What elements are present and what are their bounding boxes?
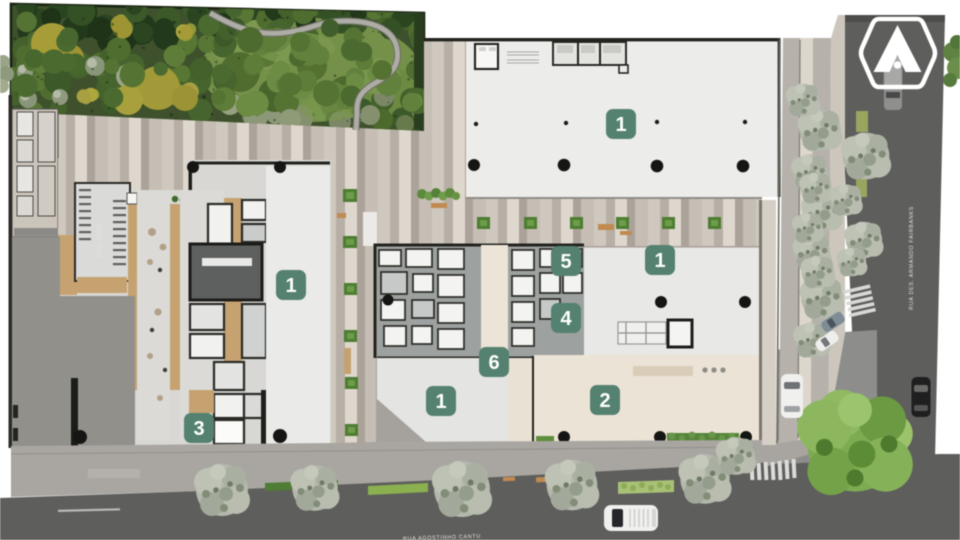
svg-text:1: 1	[654, 250, 665, 272]
svg-text:2: 2	[599, 390, 610, 412]
svg-text:1: 1	[435, 391, 446, 413]
svg-text:6: 6	[488, 352, 499, 374]
svg-text:3: 3	[193, 418, 204, 440]
svg-text:RUA DES. ARMANDO FAIRBANKS: RUA DES. ARMANDO FAIRBANKS	[909, 206, 915, 310]
svg-text:1: 1	[615, 114, 626, 136]
svg-text:1: 1	[285, 275, 296, 297]
svg-text:5: 5	[560, 251, 571, 273]
svg-text:4: 4	[560, 308, 572, 330]
svg-text:BIKE ZONE: BIKE ZONE	[97, 222, 103, 258]
